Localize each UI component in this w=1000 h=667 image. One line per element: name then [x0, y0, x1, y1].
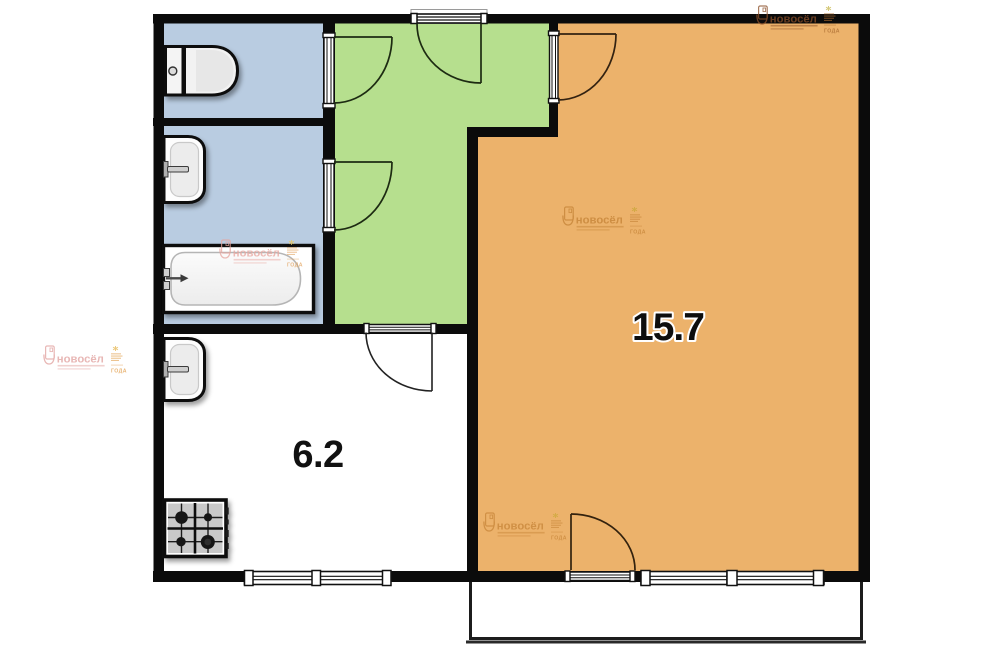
svg-text:6.2: 6.2 [292, 434, 343, 476]
svg-text:15.7: 15.7 [632, 306, 704, 349]
